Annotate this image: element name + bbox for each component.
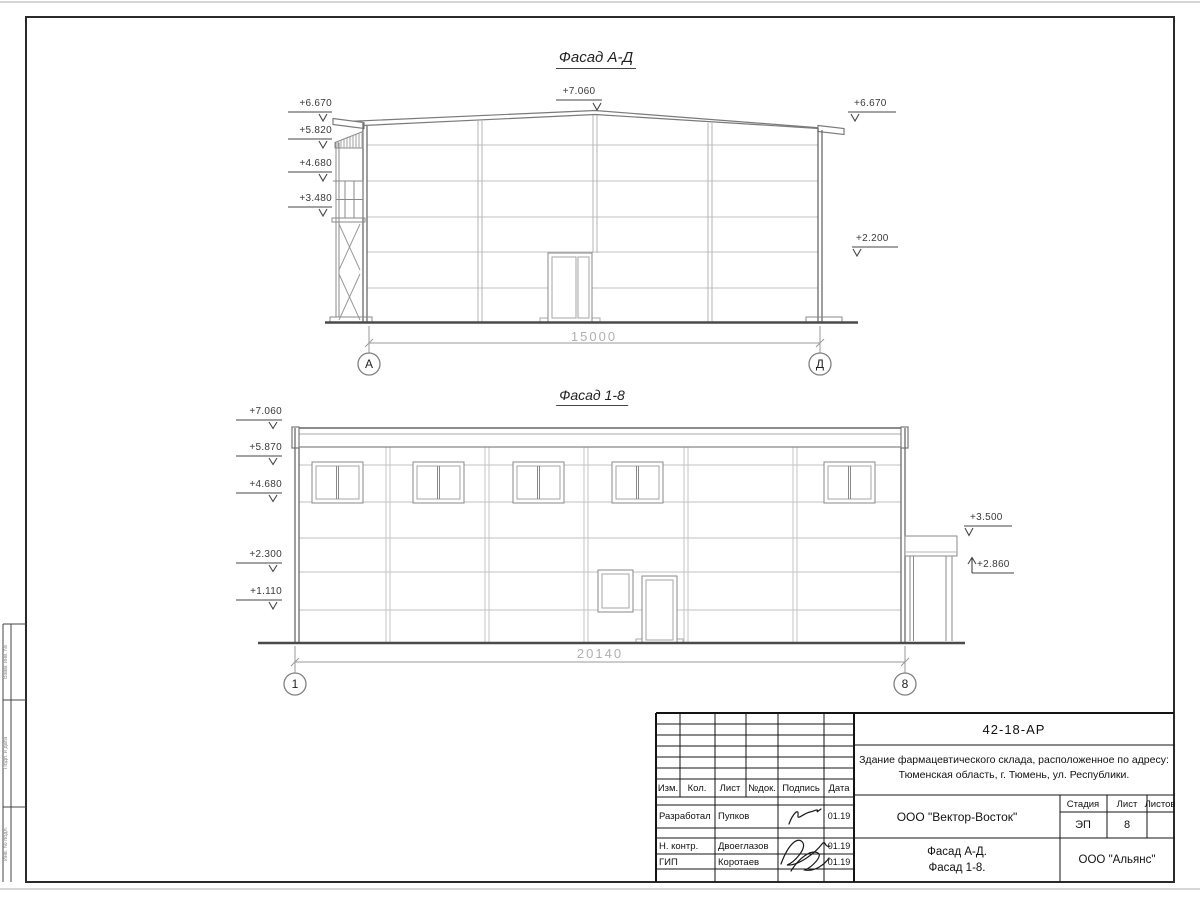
stage-value: ЭП xyxy=(1075,819,1091,831)
signature-2 xyxy=(781,840,830,865)
stage-label: Стадия xyxy=(1067,799,1099,810)
doc-number: 42-18-АР xyxy=(983,722,1046,737)
col-header-data: Дата xyxy=(828,783,849,794)
client-org: ООО "Альянс" xyxy=(1079,854,1156,866)
elevation-mark: +4.680 xyxy=(236,480,282,490)
designer-org: ООО "Вектор-Восток" xyxy=(897,810,1018,824)
row-name: Коротаев xyxy=(718,857,759,868)
small-window xyxy=(598,570,633,612)
elevation-mark: +2.860 xyxy=(977,560,1010,570)
drawing-name-line1: Фасад А-Д. xyxy=(927,846,987,858)
sheet-frame xyxy=(26,17,1174,882)
axis-label-d: Д xyxy=(816,358,824,370)
window xyxy=(612,462,663,503)
axis-label-a: А xyxy=(365,358,373,370)
fad-door xyxy=(540,253,600,322)
facade-ad-title: Фасад А-Д xyxy=(556,49,636,69)
col-header-kol: Кол. xyxy=(688,783,707,794)
margin-box-label: Подп. и дата xyxy=(3,718,9,788)
axis-label-8: 8 xyxy=(902,678,909,690)
elevation-mark: +7.060 xyxy=(236,407,282,417)
f18-door xyxy=(636,576,683,643)
margin-box-label: Инв. № подл. xyxy=(3,809,9,879)
project-name-line2: Тюменская область, г. Тюмень, ул. Респуб… xyxy=(899,769,1130,781)
elevation-mark: +3.480 xyxy=(286,194,332,204)
drawing-sheet: Фасад А-Д +6.670 +5.820 +4.680 +3.480 +7… xyxy=(0,0,1200,900)
window xyxy=(312,462,363,503)
row-date: 01.19 xyxy=(828,841,851,851)
f18-canopy xyxy=(905,536,957,641)
signatures xyxy=(781,809,830,871)
col-header-izm: Изм. xyxy=(658,783,678,794)
row-role: Разработал xyxy=(659,811,711,822)
elevation-mark: +5.820 xyxy=(286,126,332,136)
elevation-mark: +3.500 xyxy=(970,513,1003,523)
f18-parapet xyxy=(292,427,908,448)
sheet-label: Лист xyxy=(1117,799,1138,810)
window xyxy=(413,462,464,503)
f18-axis-circles xyxy=(284,673,916,695)
row-name: Пупков xyxy=(718,811,749,822)
signature-1 xyxy=(789,809,821,824)
axis-label-1: 1 xyxy=(292,678,299,690)
fad-axis-circles xyxy=(358,353,831,375)
window xyxy=(824,462,875,503)
elevation-mark: +4.680 xyxy=(286,159,332,169)
col-header-list: Лист xyxy=(720,783,741,794)
elevation-mark: +2.300 xyxy=(236,550,282,560)
row-name: Двоеглазов xyxy=(718,841,769,852)
elevation-mark: +1.110 xyxy=(236,587,282,597)
drawing-name-line2: Фасад 1-8. xyxy=(928,862,985,874)
elevation-mark: +6.670 xyxy=(854,99,887,109)
sheet-number: 8 xyxy=(1124,819,1130,831)
project-name-line1: Здание фармацевтического склада, располо… xyxy=(859,754,1169,766)
elevation-mark-ridge: +7.060 xyxy=(563,87,596,97)
elevation-mark: +6.670 xyxy=(286,99,332,109)
dimension-value: 15000 xyxy=(571,330,617,343)
window xyxy=(513,462,564,503)
col-header-podpis: Подпись xyxy=(782,783,820,794)
sheets-label: Листов xyxy=(1145,799,1176,810)
row-role: ГИП xyxy=(659,857,678,868)
f18-windows xyxy=(312,462,875,612)
col-header-ndok: №док. xyxy=(748,783,776,794)
fad-roof xyxy=(333,111,844,135)
row-date: 01.19 xyxy=(828,857,851,867)
margin-box-label: Взам. инв. № xyxy=(3,627,9,697)
elevation-mark: +2.200 xyxy=(856,234,889,244)
facade-18-title: Фасад 1-8 xyxy=(556,387,628,406)
row-date: 01.19 xyxy=(828,811,851,821)
elevation-mark: +5.870 xyxy=(236,443,282,453)
dimension-value: 20140 xyxy=(577,647,623,660)
row-role: Н. контр. xyxy=(659,841,698,852)
